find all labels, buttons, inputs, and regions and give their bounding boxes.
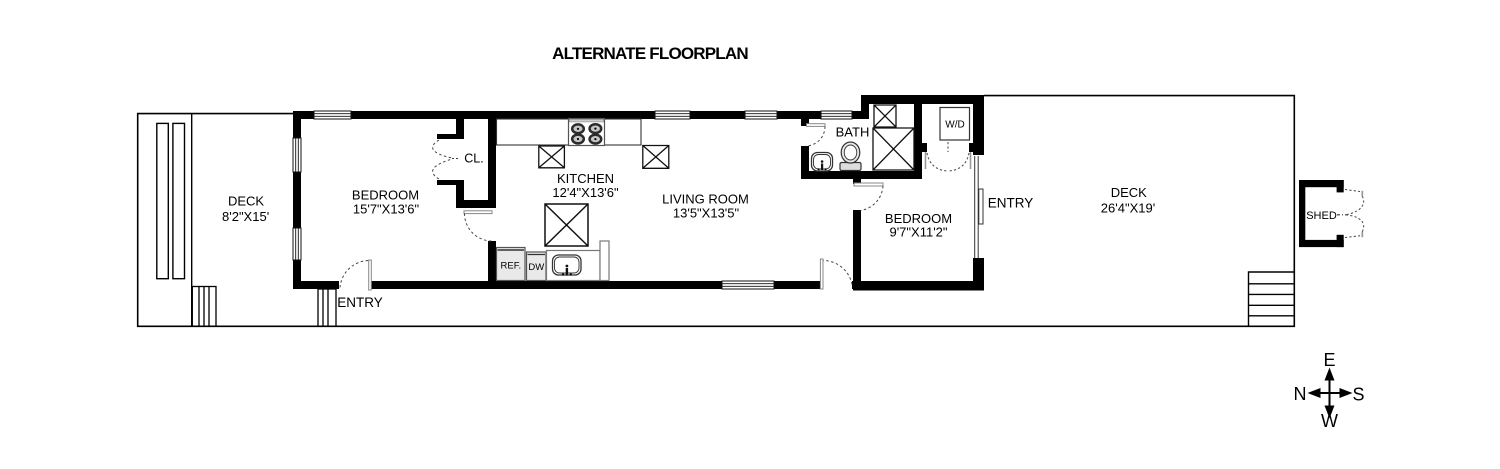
- svg-text:8'2"X15': 8'2"X15': [222, 209, 269, 224]
- svg-text:BEDROOM: BEDROOM: [352, 188, 419, 203]
- svg-text:9'7"X11'2": 9'7"X11'2": [889, 225, 947, 240]
- svg-text:15'7"X13'6": 15'7"X13'6": [353, 202, 420, 217]
- svg-text:W/D: W/D: [945, 120, 964, 131]
- svg-text:26'4"X19': 26'4"X19': [1101, 201, 1155, 216]
- svg-text:13'5"X13'5": 13'5"X13'5": [673, 206, 740, 221]
- svg-text:ENTRY: ENTRY: [988, 195, 1034, 210]
- svg-text:LIVING ROOM: LIVING ROOM: [662, 192, 749, 207]
- svg-text:N: N: [1294, 384, 1307, 404]
- svg-text:W: W: [1321, 411, 1338, 431]
- svg-text:12'4"X13'6": 12'4"X13'6": [552, 185, 619, 200]
- svg-text:REF.: REF.: [501, 261, 522, 272]
- svg-text:S: S: [1352, 385, 1364, 405]
- svg-text:KITCHEN: KITCHEN: [557, 171, 614, 186]
- svg-text:DW: DW: [528, 262, 544, 273]
- svg-text:ENTRY: ENTRY: [337, 295, 383, 310]
- svg-text:BATH: BATH: [836, 125, 870, 140]
- svg-text:DECK: DECK: [228, 194, 264, 209]
- svg-text:CL.: CL.: [464, 152, 483, 166]
- svg-text:E: E: [1323, 350, 1335, 370]
- svg-text:SHED: SHED: [1306, 210, 1337, 222]
- svg-text:DECK: DECK: [1111, 185, 1147, 200]
- svg-text:ALTERNATE FLOORPLAN: ALTERNATE FLOORPLAN: [552, 44, 748, 63]
